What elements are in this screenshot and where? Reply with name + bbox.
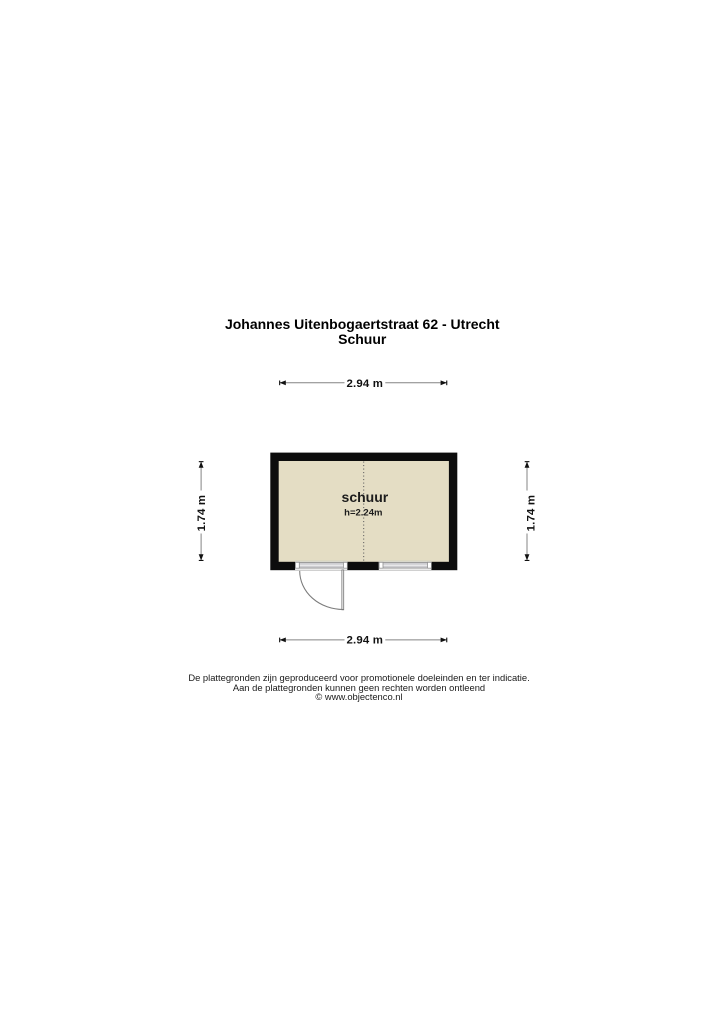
svg-text:schuur: schuur — [342, 489, 389, 505]
svg-text:h=2.24m: h=2.24m — [344, 508, 382, 519]
svg-text:1.74 m: 1.74 m — [196, 495, 208, 532]
svg-text:2.94 m: 2.94 m — [346, 635, 383, 647]
svg-text:1.74 m: 1.74 m — [526, 495, 538, 532]
svg-text:2.94 m: 2.94 m — [346, 378, 383, 390]
